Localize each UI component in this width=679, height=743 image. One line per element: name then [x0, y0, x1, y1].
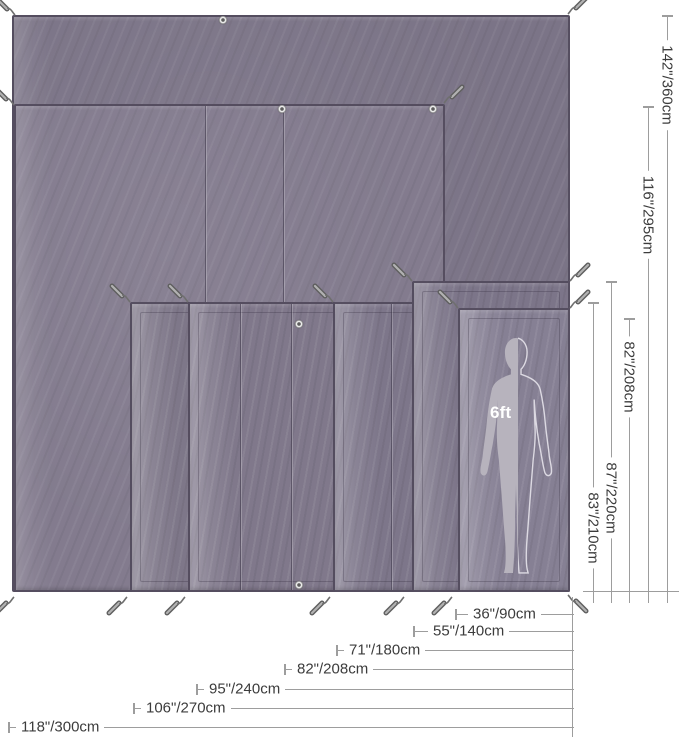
height-dim-label: 83"/210cm: [585, 487, 602, 568]
width-dim-left-tick: [336, 645, 338, 656]
height-dim-label: 87"/220cm: [603, 457, 620, 538]
width-dim-left-tick: [196, 684, 198, 695]
width-dim-label: 36"/90cm: [468, 606, 541, 623]
width-dim-left-tick: [284, 664, 286, 675]
width-dim-left-tick: [413, 626, 415, 637]
height-dim-line: [611, 281, 612, 603]
height-dim-top-tick: [606, 281, 617, 283]
height-dim-top-tick: [588, 302, 599, 304]
height-dim-label: 116"/295cm: [640, 171, 657, 259]
width-dim-left-tick: [8, 722, 10, 733]
height-dim-top-tick: [643, 106, 654, 108]
height-dims-baseline: [583, 591, 679, 592]
width-dim-left-tick: [133, 703, 135, 714]
width-dim-label: 82"/208cm: [292, 661, 373, 678]
tarp-size-comparison-diagram: 6ft 142"/360cm116"/295cm82"/208cm87"/220…: [0, 0, 679, 743]
height-dim-label: 142"/360cm: [659, 40, 676, 130]
width-dim-label: 71"/180cm: [344, 642, 425, 659]
width-dim-label: 55"/140cm: [428, 623, 509, 640]
dimension-annotations-layer: 142"/360cm116"/295cm82"/208cm87"/220cm83…: [0, 0, 679, 743]
height-dim-top-tick: [624, 318, 635, 320]
height-dim-top-tick: [662, 15, 673, 17]
width-dim-label: 106"/270cm: [141, 700, 231, 717]
width-dim-label: 95"/240cm: [204, 681, 285, 698]
width-dims-connector: [572, 597, 573, 737]
width-dim-label: 118"/300cm: [16, 719, 104, 736]
width-dim-left-tick: [455, 609, 457, 620]
height-dim-label: 82"/208cm: [621, 336, 638, 417]
